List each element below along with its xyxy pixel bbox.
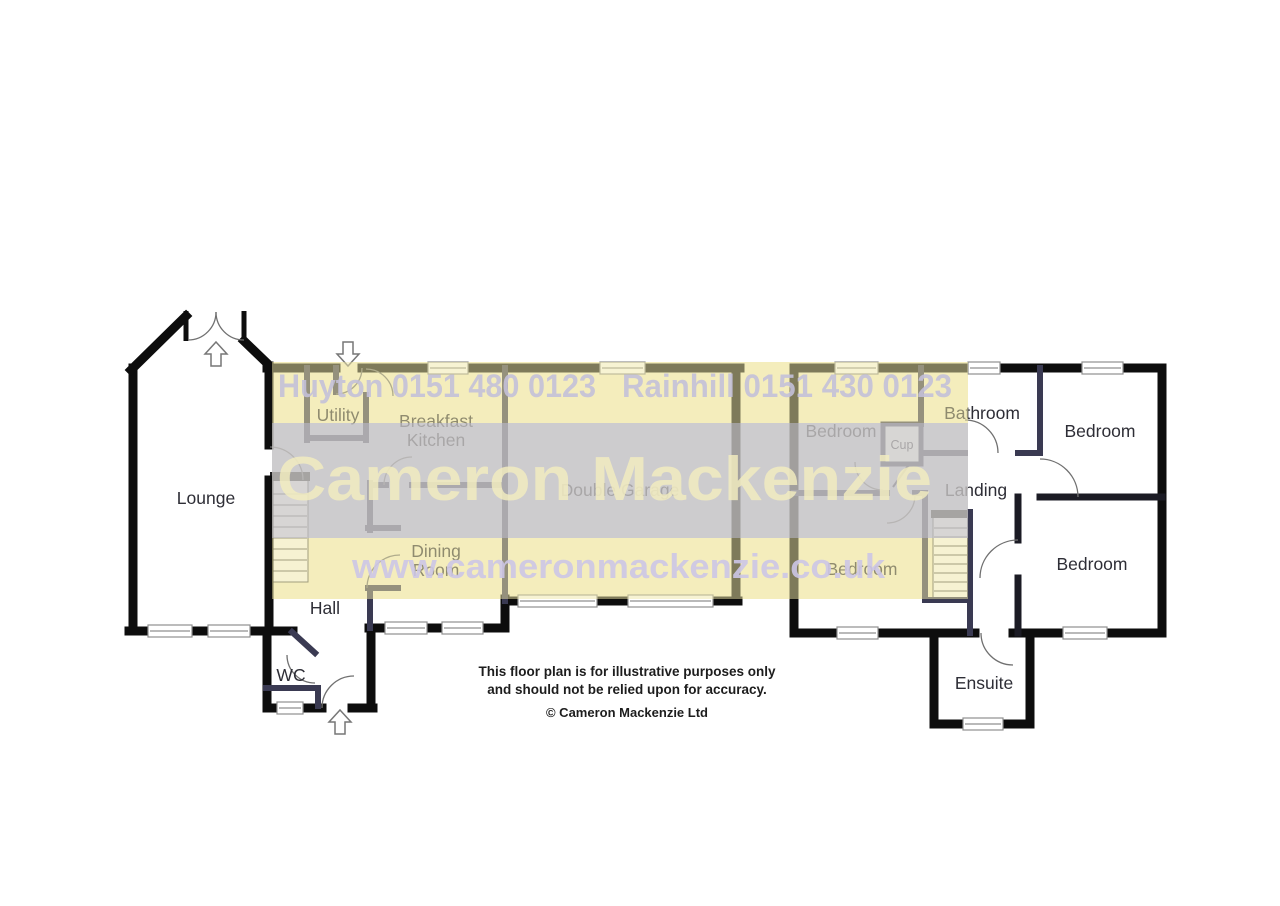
window: [837, 627, 878, 639]
front-door-arc: [322, 676, 354, 708]
window: [148, 625, 192, 637]
floor-plan-page: Lounge Utility Breakfast Kitchen Dining …: [0, 0, 1280, 906]
window: [963, 718, 1003, 730]
front-entrance-arrow-icon: [329, 710, 351, 734]
bedroom-tr-door-arc: [1040, 459, 1078, 497]
bedroom-br-door-arc: [980, 540, 1018, 578]
copyright-line: © Cameron Mackenzie Ltd: [546, 705, 708, 720]
room-label-ensuite: Ensuite: [955, 673, 1013, 693]
window: [1082, 362, 1123, 374]
disclaimer-line2: and should not be relied upon for accura…: [487, 682, 767, 697]
ensuite-door-arc: [981, 633, 1013, 665]
room-label-hall: Hall: [310, 598, 340, 618]
watermark-brand-text: Cameron Mackenzie: [277, 445, 932, 514]
room-label-wc: WC: [276, 665, 305, 685]
window: [1063, 627, 1107, 639]
french-door-jambs: [186, 311, 244, 341]
window: [442, 622, 483, 634]
floor-plan-svg: Lounge Utility Breakfast Kitchen Dining …: [0, 0, 1280, 906]
french-door-arc-right: [216, 312, 244, 340]
watermark-office2-text: Rainhill 0151 430 0123: [622, 368, 952, 404]
watermark-office1-text: Huyton 0151 480 0123: [278, 368, 596, 404]
room-label-lounge: Lounge: [177, 488, 235, 508]
window: [208, 625, 250, 637]
watermark-website-text: www.cameronmackenzie.co.uk: [351, 548, 885, 586]
room-label-bedroom-bottom-right: Bedroom: [1056, 554, 1127, 574]
window: [277, 702, 303, 714]
bathroom-door-arc: [965, 420, 998, 453]
window: [385, 622, 427, 634]
room-label-bedroom-top-right: Bedroom: [1064, 421, 1135, 441]
window: [968, 362, 1000, 374]
lounge-entrance-arrow-icon: [205, 342, 227, 366]
disclaimer-line1: This floor plan is for illustrative purp…: [478, 664, 776, 679]
